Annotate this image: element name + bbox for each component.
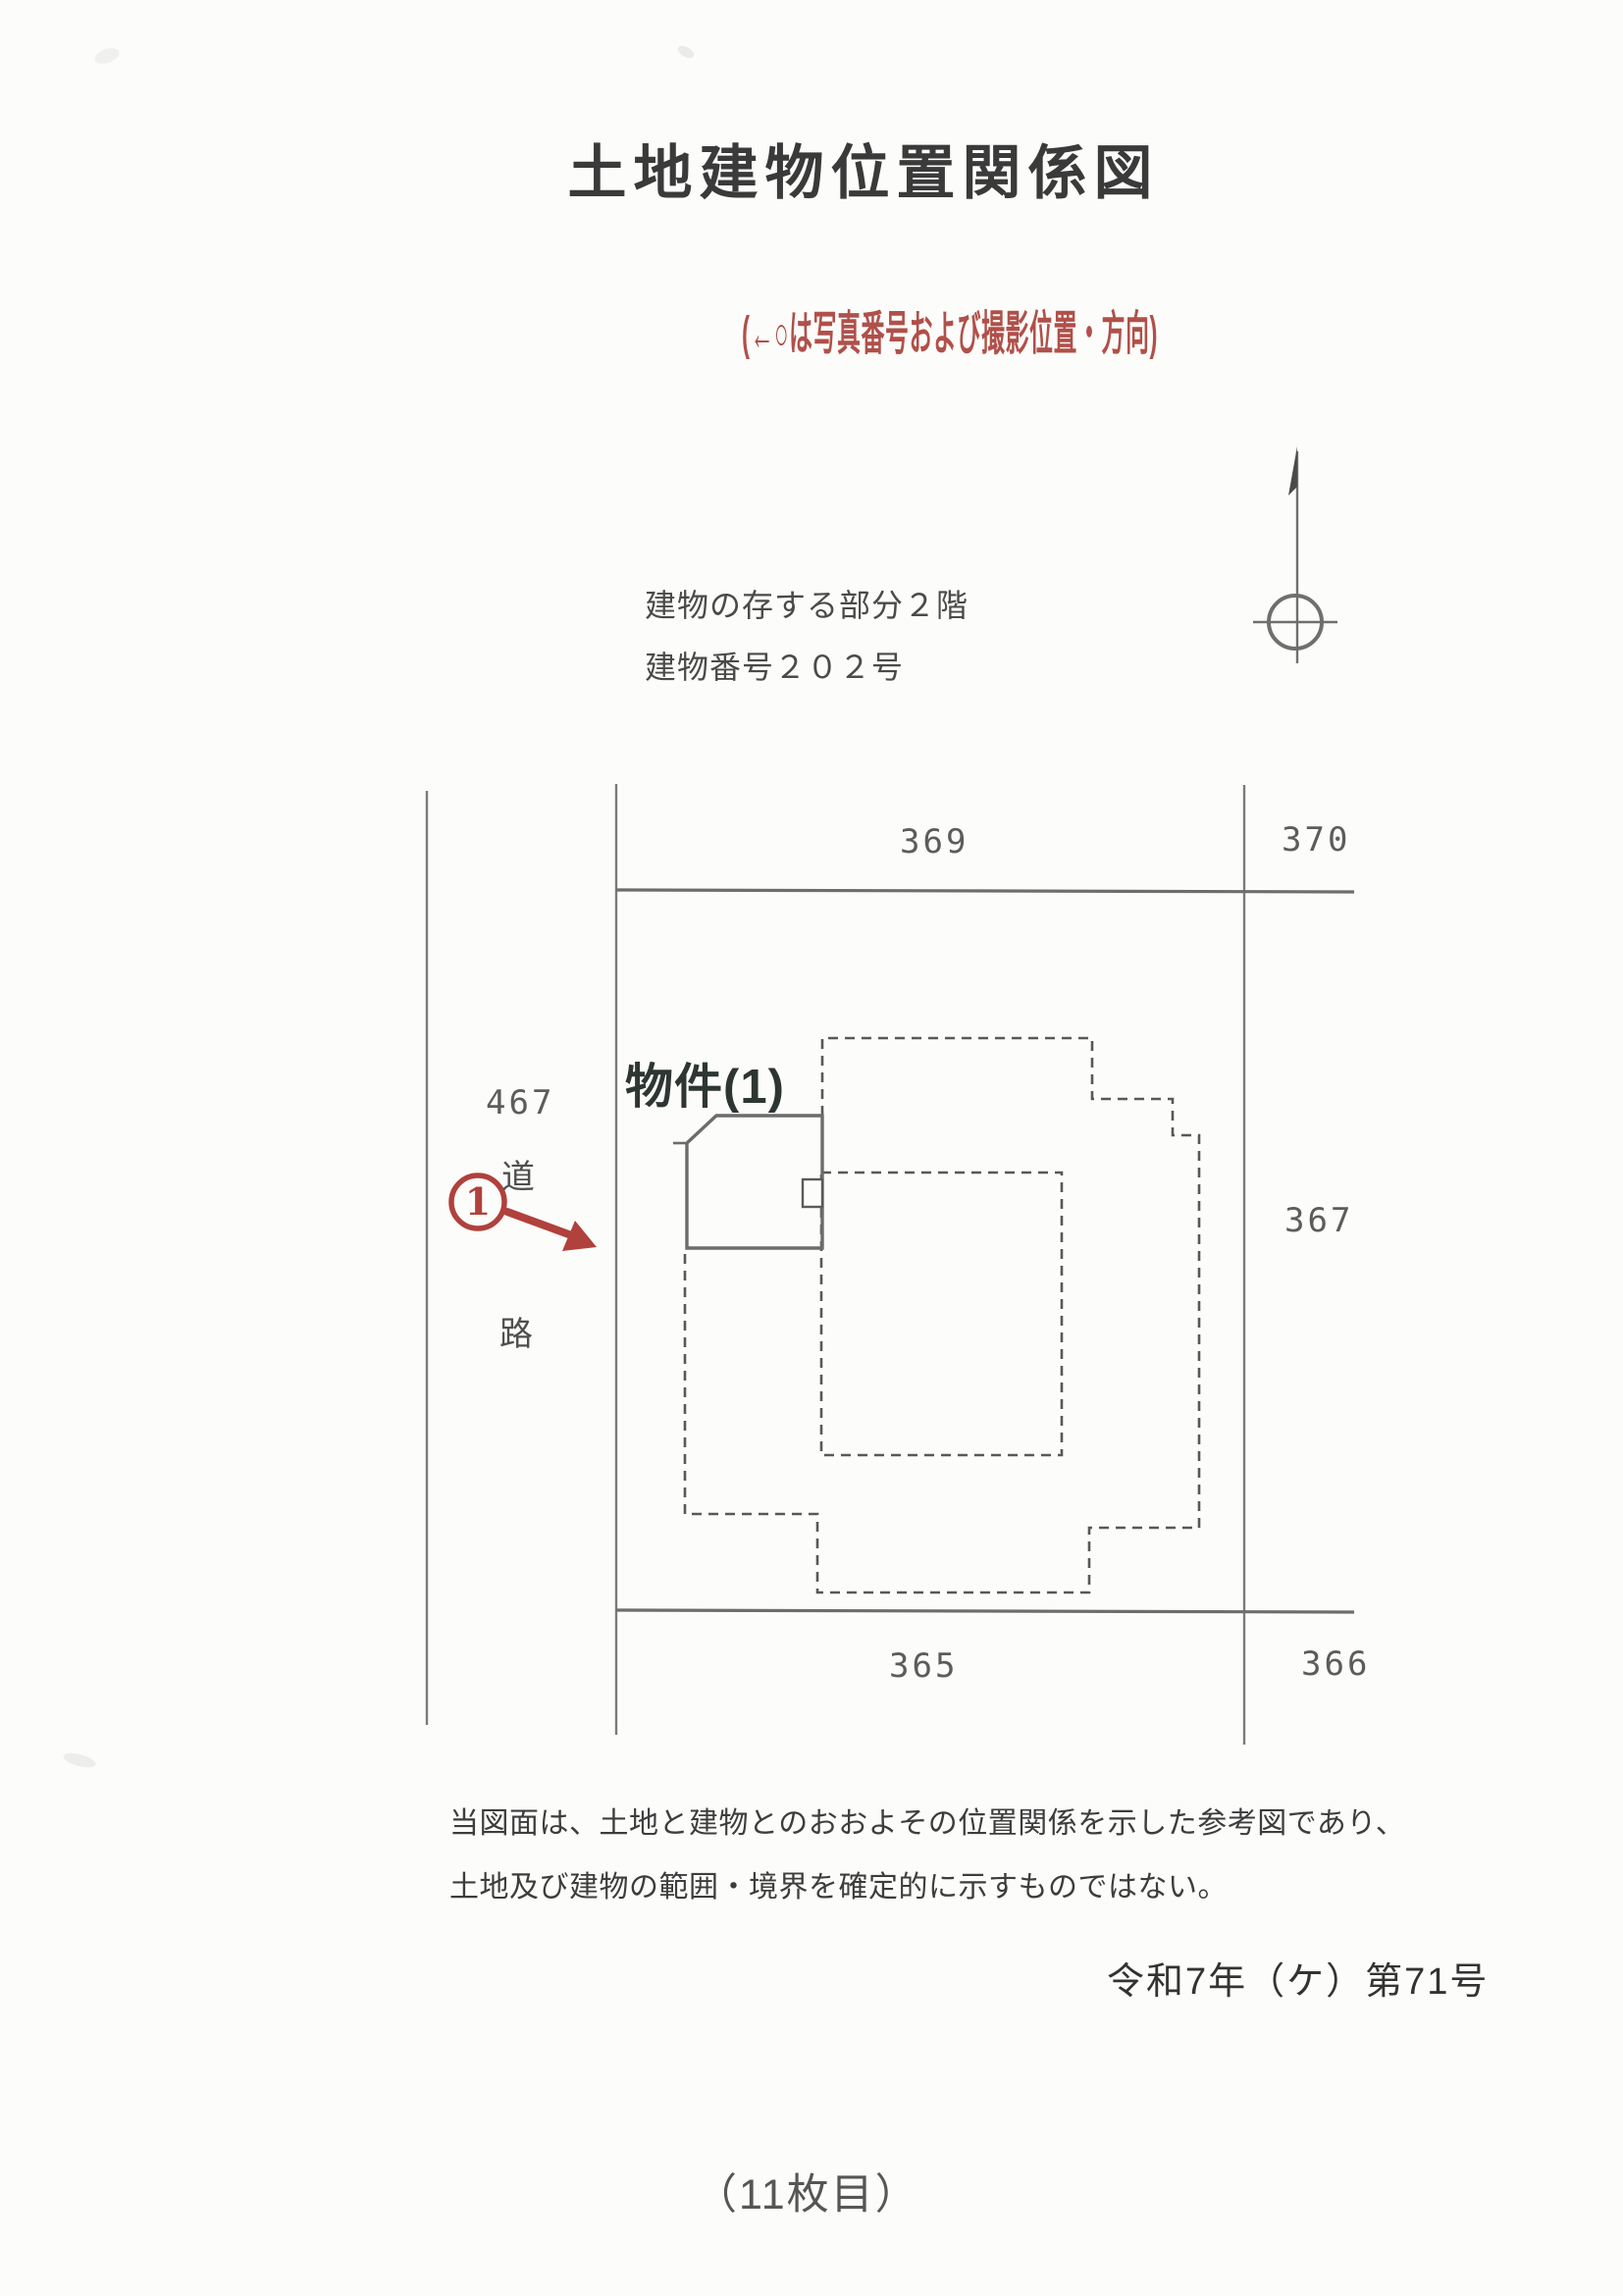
photo-legend-note: (←○は写真番号および撮影位置・方向) — [742, 294, 1158, 363]
parcel-label-369: 369 — [900, 822, 969, 861]
building-outline-2f-dashed — [821, 1173, 1062, 1455]
road-label-top: 道 — [501, 1150, 535, 1198]
parcel-north-boundary-line — [616, 890, 1354, 892]
parcel-label-366: 366 — [1301, 1644, 1370, 1684]
disclaimer-line-2: 土地及び建物の範囲・境界を確定的に示すものではない。 — [449, 1862, 1228, 1905]
road-label-bottom: 路 — [499, 1307, 533, 1355]
photo-marker-arrow-shaft — [507, 1212, 574, 1236]
photo-marker-number: 1 — [460, 1179, 496, 1225]
parcel-label-367: 367 — [1284, 1201, 1353, 1240]
entrance-notch — [803, 1179, 822, 1207]
parcel-south-boundary-line — [616, 1610, 1354, 1612]
case-number: 令和7年（ケ）第71号 — [1107, 1951, 1489, 2005]
building-outline-1f-dashed — [685, 1038, 1199, 1592]
property-label: 物件(1) — [625, 1048, 785, 1118]
building-info-floor: 建物の存する部分２階 — [645, 581, 969, 626]
parcel-label-467: 467 — [486, 1083, 554, 1122]
parcel-boundary-lines — [427, 784, 1354, 1745]
north-arrow — [1253, 446, 1337, 663]
parcel-label-370: 370 — [1282, 820, 1350, 860]
parcel-label-365: 365 — [889, 1646, 958, 1686]
document-title: 土地建物位置関係図 — [568, 126, 1160, 211]
sheet-number: （11枚目） — [695, 2161, 919, 2221]
building-info-number: 建物番号２０２号 — [645, 643, 904, 688]
north-arrow-barb — [1288, 446, 1297, 496]
scanned-document-page: 土地建物位置関係図 (←○は写真番号および撮影位置・方向) 建物の存する部分２階… — [0, 0, 1623, 2296]
disclaimer-line-1: 当図面は、土地と建物とのおおよその位置関係を示した参考図であり、 — [449, 1799, 1405, 1842]
